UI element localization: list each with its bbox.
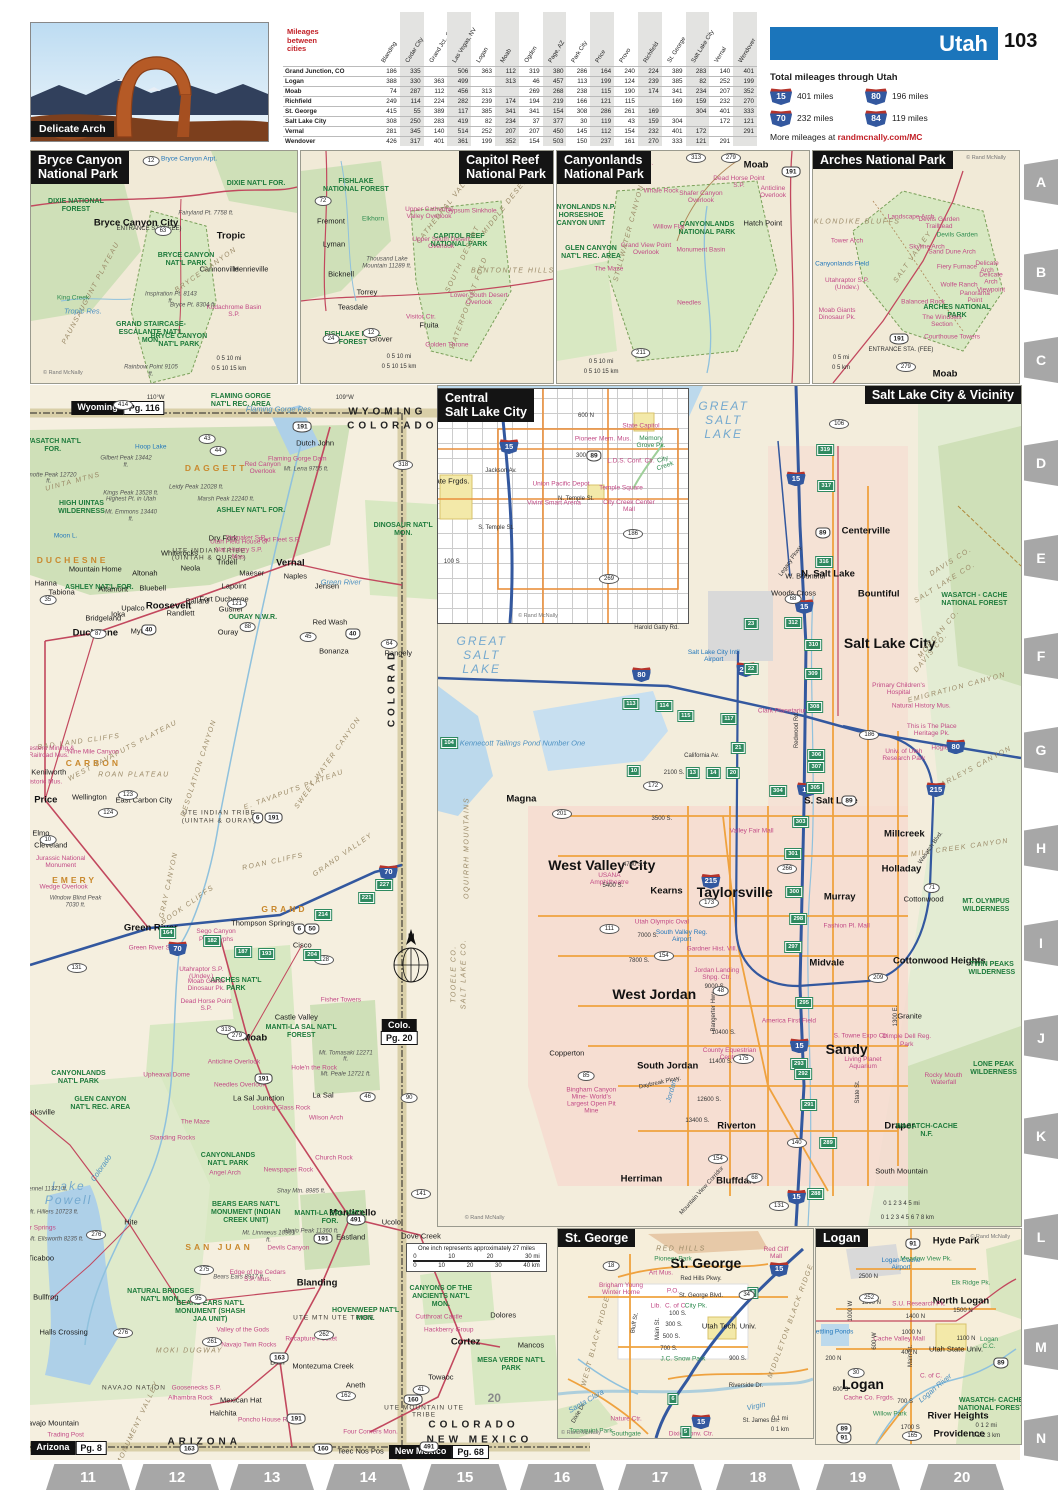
grid-letter-B: B [1024, 249, 1058, 295]
grid-number-12: 12 [135, 1464, 219, 1490]
us-route-shield: 491 [346, 1215, 365, 1226]
capitol-reef-title: Capitol Reef National Park [459, 151, 553, 184]
state-route-shield: 30 [848, 1368, 865, 1378]
map-label: Murray [824, 891, 856, 902]
map-label: State Capitol [622, 422, 659, 429]
map-label: Window Blind Peak 7030 ft. [47, 895, 105, 908]
map-label: Towaoc [428, 1373, 453, 1382]
map-label: Navajo Mountain [30, 1419, 79, 1428]
map-label: Granite [897, 1012, 922, 1021]
map-label: Jackson Av. [485, 468, 516, 474]
us-route-shield: 89 [993, 1357, 1008, 1368]
map-label: 0 5 10 15 km [584, 369, 619, 375]
exit-marker: 317 [818, 481, 834, 491]
map-label: Memory Grove Pk. [633, 435, 670, 449]
map-label: Cottonwood [904, 895, 944, 904]
map-label: 0 5 km [832, 365, 850, 371]
state-route-shield: 95 [190, 1294, 207, 1304]
north-compass-icon: N [388, 927, 434, 987]
map-label: MOKI DUGWAY [156, 1348, 223, 1355]
state-route-shield: 162 [336, 1391, 356, 1401]
mileage-column-header: Moab [495, 12, 519, 67]
exit-marker: 297 [785, 942, 801, 952]
us-route-shield: 163 [270, 1352, 289, 1363]
map-label: ARIZONA [167, 1436, 241, 1447]
map-label: Hoop Lake [135, 444, 166, 451]
grid-number-20: 20 [920, 1464, 1004, 1490]
map-label: Dutch John [296, 439, 334, 448]
capitol-reef-labels: FISHLAKE NATIONAL FORESTFISHLAKE NAT'L F… [301, 151, 553, 383]
map-label: South Jordan [637, 1061, 698, 1072]
interstate-shield: 215 [926, 781, 945, 797]
state-route-shield: 201 [552, 809, 572, 819]
map-label: Hanna [35, 578, 57, 587]
map-label: DIXIE NAT'L FOR. [220, 180, 292, 188]
map-label: Kings Peak 13528 ft. Highest Pt. in Utah [102, 490, 160, 503]
canyonlands-labels: MoabIsland in the Sky Vis. Ctr.Dead Hors… [557, 151, 809, 383]
map-label: Dolores [490, 1310, 516, 1319]
map-scale: One inch represents approximately 27 mil… [406, 1243, 547, 1272]
map-label: Jordan Landing Shpg. Ctr. [686, 967, 748, 981]
state-route-shield: 262 [314, 1330, 334, 1340]
map-label: 500 S. [663, 1334, 680, 1340]
map-label: STILLWATER CANYON [613, 183, 646, 282]
mileage-column-header: Las Vegas, NV [447, 12, 471, 67]
map-label: UTE MOUNTAIN UTE TRIBE [380, 1404, 468, 1419]
map-label: BEARS EARS NAT'L MONUMENT (SHASH JAA UNI… [174, 1300, 246, 1324]
map-label: Anticline Overlook [755, 184, 791, 198]
interstate-shield: 70 [379, 864, 398, 880]
map-label: 0 5 mi [833, 355, 849, 361]
map-label: ASHLEY NAT'L FOR. [215, 507, 287, 515]
us-route-shield: 89 [841, 795, 856, 806]
map-label: Salt Lake City Int'l Airport [685, 648, 743, 662]
us-route-shield: 40 [345, 629, 360, 640]
map-label: 400 N [901, 1350, 917, 1356]
map-label: DESOLATION CANYON [180, 718, 218, 817]
map-label: Elkhorn [362, 215, 384, 222]
grid-letter-N: N [1024, 1415, 1058, 1461]
map-label: ROAN PLATEAU [98, 772, 170, 779]
exit-marker: 117 [721, 714, 736, 724]
state-route-shield: 154 [708, 1154, 728, 1164]
randmcnally-link[interactable]: randmcnally.com/MC [838, 132, 923, 142]
map-label: Dixie Conv. Ctr. [669, 1430, 714, 1437]
inset-arches: © Rand McNallyKLONDIKE BLUFFSTower ArchL… [812, 150, 1020, 384]
us-route-shield: 89 [586, 450, 601, 461]
map-label: Settling Ponds [815, 1329, 853, 1336]
map-label: South Mountain [875, 1167, 928, 1176]
state-route-shield: 279 [721, 153, 741, 163]
mileage-column-header: Vernal [709, 12, 733, 67]
state-route-shield: 279 [896, 362, 916, 372]
map-label: MORGAN CO. [917, 608, 962, 659]
map-label: MONUMENT VALLEY [115, 1380, 160, 1460]
exit-marker: 20 [727, 768, 739, 778]
map-label: Angel Arch [209, 1169, 240, 1176]
exit-marker: 308 [807, 702, 823, 712]
map-label: 0 5 10 15 km [212, 366, 247, 372]
exit-marker: 193 [259, 949, 275, 959]
state-route-shield: 34 [738, 1290, 755, 1300]
map-label: Hanksville [30, 1107, 55, 1116]
state-route-shield: 41 [413, 1385, 430, 1395]
map-label: WASATCH- CACHE NATIONAL FOREST [955, 1397, 1022, 1413]
exit-marker: 5 [681, 1427, 690, 1437]
map-label: Randlett [167, 608, 195, 617]
map-label: WASATCH NAT'L FOR. [30, 438, 89, 454]
map-label: Mt. Ellsworth 8235 ft. [30, 1236, 84, 1243]
map-label: 600 W [872, 1332, 878, 1349]
state-route-shield: 111 [600, 924, 619, 934]
map-label: California Av. [684, 753, 719, 759]
map-label: 300 S. [665, 1322, 682, 1328]
map-label: Meadow View Pk. [900, 1256, 952, 1263]
map-label: ENTRANCE STA. (FEE) [869, 347, 934, 353]
grid-number-16: 16 [520, 1464, 604, 1490]
more-mileages-text: More mileages at [770, 132, 835, 142]
map-label: Lapoint [222, 582, 247, 591]
map-label: Gypsum Sinkhole [446, 208, 497, 215]
map-label: Rangely [385, 648, 413, 657]
map-label: WYOMING [348, 406, 426, 417]
state-route-shield: 35 [39, 595, 56, 605]
exit-marker: 306 [809, 750, 825, 760]
state-title-bar: Utah [770, 27, 998, 60]
state-route-shield: 88 [239, 622, 256, 632]
map-label: Utah Field House of Nat. History S.P. Mu… [208, 539, 270, 560]
state-route-shield: 186 [859, 730, 879, 740]
total-mileage-item: 15401 miles [770, 87, 865, 105]
map-label: Moab [933, 368, 958, 379]
interstate-shield: 215 [701, 873, 720, 889]
map-label: The Windows Section [911, 314, 973, 328]
exit-marker: 187 [235, 947, 251, 957]
state-route-shield: 276 [86, 1230, 106, 1240]
copyright-note: © Rand McNally [561, 1430, 601, 1436]
map-label: Shafer Canyon Overlook [670, 190, 732, 204]
mileage-column-header: Richfield [638, 12, 662, 67]
map-label: Needles [677, 299, 701, 306]
map-label: Cache Valley Mall [873, 1336, 925, 1343]
us-route-shield: 40 [141, 625, 156, 636]
map-label: Trading Post [47, 1432, 84, 1439]
map-label: Logan C.C. [973, 1336, 1005, 1350]
state-route-shield: 63 [155, 226, 172, 236]
map-label: Leidy Peak 12028 ft. [169, 485, 224, 492]
map-label: Virgin [746, 1400, 767, 1413]
map-label: Main St. [655, 1318, 661, 1340]
map-label: Vernal [276, 558, 305, 569]
map-label: Pioneer Mem. Mus. [575, 436, 631, 443]
state-route-shield: 85 [578, 1071, 595, 1081]
map-label: Temple Square [599, 484, 643, 491]
interstate-shield: 15 [790, 1037, 809, 1053]
map-label: Devils Garden Trailhead [908, 216, 970, 230]
map-label: 700 S. [660, 1346, 677, 1352]
grid-letter-K: K [1024, 1113, 1058, 1159]
grid-number-13: 13 [230, 1464, 314, 1490]
map-label: Bryce Canyon Arpt. [161, 156, 217, 163]
state-route-shield: 123 [118, 790, 138, 800]
map-label: Anticline Overlook [208, 1059, 260, 1066]
map-label: Willow Flat [653, 224, 684, 231]
interstate-shield: 15 [786, 470, 805, 486]
grid-letter-I: I [1024, 920, 1058, 966]
map-label: Goosenecks S.P. [172, 1384, 221, 1391]
state-route-shield: 175 [733, 1054, 753, 1064]
mileage-grid: BlandingCedar CityGrand Jct., COLas Vega… [283, 12, 757, 146]
state-route-shield: 279 [227, 1031, 247, 1041]
state-route-shield: 313 [686, 153, 706, 163]
map-label: CANYONLANDS NAT'L PARK [43, 1070, 115, 1086]
exit-marker: 312 [785, 618, 801, 628]
state-route-shield: 154 [654, 951, 674, 961]
map-label: S.U. Research Pk. [892, 1300, 945, 1307]
us-route-shield: 160 [404, 1394, 423, 1405]
exit-marker: 14 [707, 768, 719, 778]
scale-title: One inch represents approximately 27 mil… [411, 1246, 542, 1252]
state-route-shield: 269 [599, 574, 619, 584]
map-label: La Sal Junction [233, 1093, 284, 1102]
exit-marker: 304 [770, 786, 786, 796]
page-jump: New MexicoPg. 68 [389, 1445, 489, 1459]
exit-marker: 114 [657, 701, 672, 711]
map-label: Teasdale [338, 302, 368, 311]
map-label: PAUNSAUGUNT PLATEAU [61, 241, 121, 346]
exit-marker: 316 [816, 557, 832, 567]
state-route-shield: 12 [363, 328, 380, 338]
map-label: MIDDLETON BLACK RIDGE [767, 1263, 814, 1380]
map-label: Midvale [809, 958, 844, 969]
map-label: Fashion Pl. Mall [824, 923, 870, 930]
map-label: 700 S [897, 1399, 913, 1405]
map-label: Ioka [111, 609, 125, 618]
mileage-column-header: Wendover [733, 12, 757, 67]
map-label: Naples [284, 572, 307, 581]
map-label: Altamont [98, 585, 128, 594]
mileage-column-header: Price [590, 12, 614, 67]
map-label: 100 S [444, 559, 460, 565]
map-label: Riverton [717, 1121, 756, 1132]
state-route-shield: 46 [359, 1092, 376, 1102]
us-route-shield: 91 [836, 1432, 851, 1443]
map-label: State St. [855, 1080, 861, 1103]
us-route-shield: 163 [180, 1444, 199, 1455]
map-label: City Pk. [685, 1302, 707, 1309]
map-label: N. Temple St. [558, 496, 594, 502]
map-label: S. Temple St. [478, 525, 514, 531]
map-label: Red Canyon Overlook [232, 461, 294, 475]
map-label: Eastland [336, 1233, 365, 1242]
exit-marker: 221 [359, 893, 375, 903]
map-label: South Valley Reg. Airport [653, 929, 711, 943]
grid-letter-M: M [1024, 1324, 1058, 1370]
page-number: 103 [1004, 30, 1037, 53]
state-route-shield: 10 [39, 835, 56, 845]
map-label: Wolfe Ranch [941, 282, 978, 289]
mileage-row: Moab742871124563132692682381151901743412… [283, 87, 757, 97]
map-label: Cisco [293, 941, 312, 950]
photo-caption: Delicate Arch [31, 121, 114, 137]
state-route-shield: 18 [603, 1261, 620, 1271]
map-label: COLORADO [347, 420, 437, 431]
map-label: Mt. Hillers 10723 ft. [30, 1209, 79, 1216]
map-label: Lib. [651, 1302, 661, 1309]
map-label: 1700 S [901, 1425, 920, 1431]
grid-number-18: 18 [716, 1464, 800, 1490]
map-label: Thompson Springs [231, 918, 294, 927]
map-label: COLORADO [428, 1419, 518, 1430]
map-label: Star Springs [30, 1224, 56, 1231]
exit-marker: 104 [441, 738, 457, 748]
state-route-shield: 71 [923, 883, 940, 893]
map-label: GREAT SALT LAKE [689, 399, 759, 441]
map-label: Bingham Canyon Mine- World's Largest Ope… [560, 1087, 622, 1116]
map-label: ROAN CLIFFS [241, 852, 304, 872]
map-label: P.O. [667, 1287, 679, 1294]
map-label: Panorama Point [953, 290, 997, 304]
interstate-shield: 80 [946, 738, 965, 754]
map-label: Maeser [239, 569, 264, 578]
state-route-shield: 72 [315, 196, 332, 206]
exit-marker: 113 [623, 699, 638, 709]
state-route-shield: 172 [643, 781, 663, 791]
map-label: MT. OLYMPUS WILDERNESS [950, 898, 1022, 914]
map-label: Castle Valley [275, 1013, 318, 1022]
exit-marker: 319 [817, 445, 833, 455]
map-label: Valley Fair Mall [730, 828, 774, 835]
map-label: Art Mus. [649, 1270, 673, 1277]
map-label: Mt. Linnaeus 10961 ft. [240, 1231, 298, 1244]
map-label: Rainbow Point 9105 ft. [122, 364, 180, 377]
map-label: Primary Children's Hospital [868, 682, 930, 696]
map-label: Moab [744, 159, 769, 170]
map-label: Hackberry Group [424, 1326, 474, 1333]
map-label: 600 S [833, 1387, 849, 1393]
map-label: Sand Dune Arch [928, 249, 975, 256]
map-label: WASATCH-CACHE N.F. [891, 1123, 963, 1139]
interstate-shield: 15 [787, 1189, 806, 1205]
state-route-shield: 414 [113, 400, 133, 410]
map-label: 1300 E. [893, 1006, 899, 1027]
mileage-column-header: Salt Lake City [686, 12, 710, 67]
map-label: ENTRANCE STA. (FEE) [117, 226, 182, 232]
interstate-shield: 84 [865, 109, 887, 127]
grid-letter-A: A [1024, 159, 1058, 205]
us-route-shield: 191 [254, 1074, 273, 1085]
map-label: Herriman [621, 1173, 663, 1184]
map-label: 0 5 10 15 km [382, 364, 417, 370]
map-label: 2500 N [859, 1274, 878, 1280]
inset-central-slc: State CapitolMemory Grove Pk.Pioneer Mem… [437, 388, 689, 624]
map-label: WEST BLACK RIDGE [581, 1295, 612, 1387]
us-route-shield: 191 [314, 1233, 333, 1244]
map-label: DIXIE NATIONAL FOREST [40, 198, 112, 214]
map-label: Devils Canyon [267, 1245, 309, 1252]
state-route-shield: 131 [67, 963, 87, 973]
state-route-shield: 261 [202, 1337, 222, 1347]
state-route-shield: 266 [777, 864, 797, 874]
map-label: Altonah [132, 569, 157, 578]
state-route-shield: 165 [902, 1431, 922, 1441]
st-george-title: St. George [558, 1229, 635, 1247]
map-label: Willow Park [873, 1410, 907, 1417]
exit-marker: 164 [160, 928, 176, 938]
exit-marker: 23 [745, 619, 757, 629]
mileage-row: St. George415553891173853413411543082862… [283, 107, 757, 117]
logan-title: Logan [816, 1229, 868, 1247]
map-label: 109°W [336, 395, 354, 401]
map-label: Fremont [317, 217, 345, 226]
exit-marker: 288 [808, 1189, 824, 1199]
map-label: Hole'n the Rock [291, 1064, 337, 1071]
state-route-shield: 68 [746, 1173, 763, 1183]
map-label: Marsh Peak 12240 ft. [197, 497, 254, 504]
map-label: Millcreek [884, 828, 925, 839]
map-label: CANYONS OF THE ANCIENTS NAT'L MON. [405, 1285, 477, 1309]
logan-labels: Hyde ParkNorth LoganLoganRiver HeightsPr… [816, 1229, 1021, 1444]
us-route-shield: 191 [287, 1414, 306, 1425]
state-route-shield: 24 [323, 334, 340, 344]
map-label: Wilson Arch [309, 1115, 343, 1122]
inset-capitol-reef: FISHLAKE NATIONAL FORESTFISHLAKE NAT'L F… [300, 150, 554, 384]
map-label: City Creek Center Mall [600, 499, 659, 513]
map-label: SWEET WATER CANYON [293, 716, 362, 810]
map-label: Utah Olympic Oval [635, 918, 689, 925]
map-label: 0 5 10 mi [589, 359, 614, 365]
map-label: 1500 N [953, 1308, 972, 1314]
map-label: Elk Ridge Pk. [951, 1279, 990, 1286]
map-label: Fruita [419, 321, 438, 330]
map-label: Monument Basin [677, 246, 726, 253]
us-route-shield: 191 [889, 333, 908, 344]
state-route-shield: 64 [381, 639, 398, 649]
us-route-shield: 50 [305, 923, 320, 934]
map-label: Gilbert Peak 13442 ft. [97, 456, 155, 469]
state-route-shield: 106 [829, 419, 849, 429]
us-route-shield: 491 [420, 1442, 439, 1453]
map-label: Shay Mtn. 8985 ft. [277, 1189, 326, 1196]
map-label: Green River [321, 577, 361, 586]
map-label: West Jordan [612, 986, 696, 1002]
mileage-table: Mileages between cities BlandingCedar Ci… [283, 12, 757, 142]
map-label: Fisher Towers [321, 996, 361, 1003]
map-label: DINOSAUR NAT'L MON. [367, 522, 439, 538]
map-label: King Creek [57, 295, 89, 302]
total-mileages-title: Total mileages through Utah [770, 72, 1030, 83]
us-route-shield: 191 [293, 421, 312, 432]
us-route-shield: 91 [905, 1239, 920, 1250]
atlas-page: Delicate Arch Mileages between cities Bl… [0, 0, 1061, 1500]
map-label: N. Salt Lake [801, 569, 855, 580]
state-route-shield: 43 [199, 434, 216, 444]
map-label: This is The Place Heritage Pk. [901, 722, 963, 736]
copyright-note: © Rand McNally [518, 613, 558, 619]
map-label: Hatch Point [743, 218, 782, 227]
map-label: Blanding [297, 1277, 338, 1288]
map-label: Whale Rock [644, 187, 679, 194]
map-label: Courthouse Towers [924, 334, 980, 341]
map-label: Natural History Mus. [892, 702, 951, 709]
exit-marker: 13 [687, 768, 699, 778]
map-label: Balanced Rock [901, 298, 945, 305]
map-label: L.D.S. Conf. Ctr. [607, 457, 654, 464]
map-label: Hite [124, 1218, 137, 1227]
mileage-column-header: Blanding [376, 12, 400, 67]
map-label: Utah Tech. Univ. [702, 1321, 756, 1330]
map-label: GLEN CANYON NAT'L REC. AREA [64, 1096, 136, 1112]
